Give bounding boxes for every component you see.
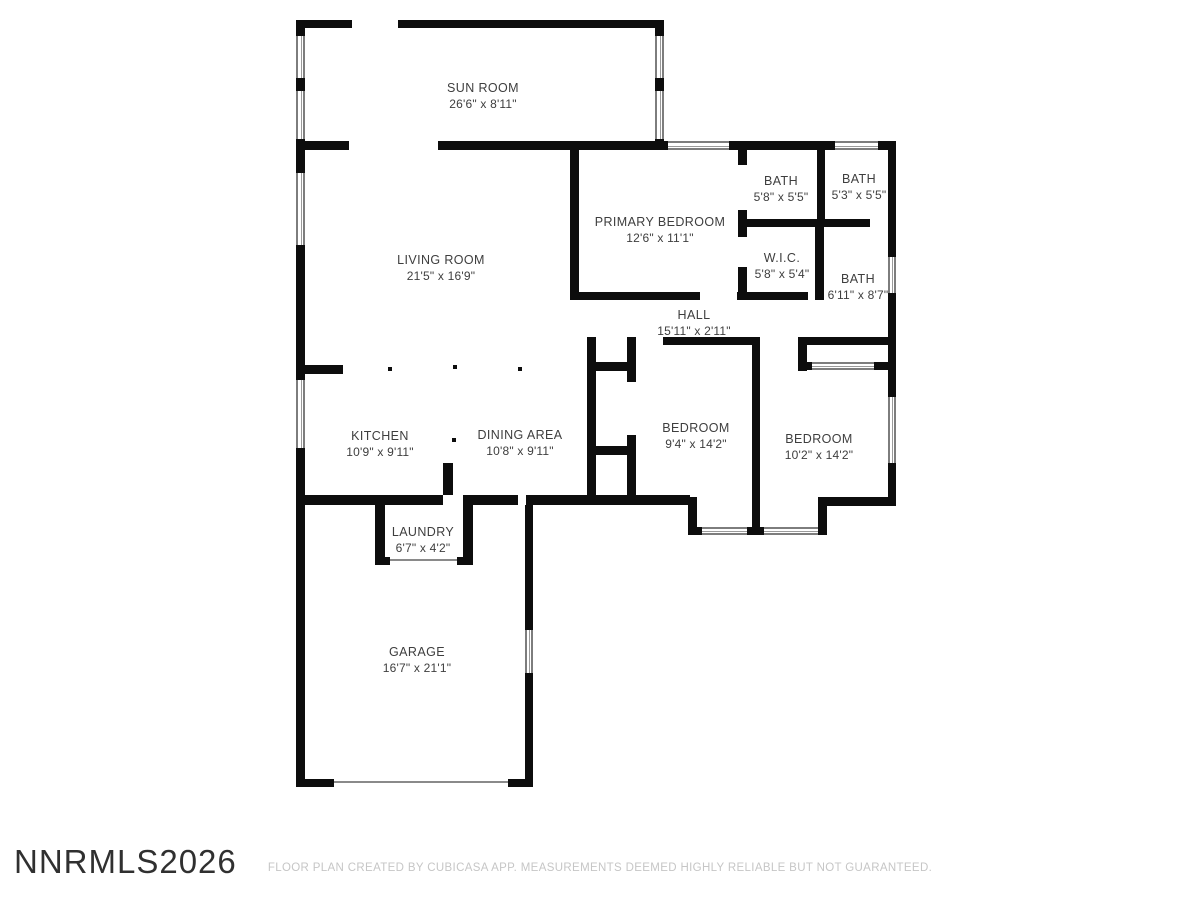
room-label-dining-area: DINING AREA10'8" x 9'11" bbox=[478, 428, 563, 459]
window bbox=[764, 527, 818, 535]
room-label-living-room: LIVING ROOM21'5" x 16'9" bbox=[397, 253, 485, 284]
window bbox=[888, 397, 896, 463]
wall bbox=[385, 495, 443, 505]
wall bbox=[747, 527, 754, 535]
wall bbox=[570, 292, 700, 300]
room-label-bedroom-1: BEDROOM9'4" x 14'2" bbox=[662, 421, 729, 452]
room-dims: 21'5" x 16'9" bbox=[397, 269, 485, 284]
room-dims: 10'2" x 14'2" bbox=[785, 448, 853, 463]
room-label-wic: W.I.C.5'8" x 5'4" bbox=[755, 251, 810, 282]
wall bbox=[878, 141, 896, 150]
wall bbox=[526, 495, 690, 505]
wall bbox=[443, 463, 453, 495]
wall bbox=[587, 337, 596, 497]
room-label-bath-1: BATH5'8" x 5'5" bbox=[754, 174, 809, 205]
wall bbox=[296, 245, 305, 380]
window bbox=[668, 141, 699, 150]
wall bbox=[738, 227, 747, 237]
wall bbox=[817, 150, 825, 227]
wall bbox=[738, 267, 747, 300]
room-dims: 5'3" x 5'5" bbox=[832, 188, 887, 203]
room-name: BEDROOM bbox=[785, 432, 853, 447]
tick-mark bbox=[312, 366, 316, 370]
wall bbox=[525, 505, 533, 630]
window bbox=[296, 91, 305, 139]
room-dims: 5'8" x 5'4" bbox=[755, 267, 810, 282]
window bbox=[296, 173, 305, 245]
wall bbox=[296, 779, 334, 787]
wall bbox=[398, 20, 664, 28]
wall bbox=[737, 292, 808, 300]
wall bbox=[305, 365, 343, 374]
window bbox=[296, 380, 305, 448]
room-label-hall: HALL15'11" x 2'11" bbox=[657, 308, 731, 339]
room-name: BEDROOM bbox=[662, 421, 729, 436]
window bbox=[702, 527, 747, 535]
room-name: W.I.C. bbox=[755, 251, 810, 266]
wall bbox=[375, 495, 385, 565]
wall bbox=[375, 557, 390, 565]
wall bbox=[798, 337, 890, 345]
room-name: BATH bbox=[832, 172, 887, 187]
room-name: HALL bbox=[657, 308, 731, 323]
room-dims: 6'7" x 4'2" bbox=[392, 541, 454, 556]
room-dims: 15'11" x 2'11" bbox=[657, 324, 731, 339]
room-name: LIVING ROOM bbox=[397, 253, 485, 268]
wall bbox=[570, 150, 579, 300]
room-name: BATH bbox=[754, 174, 809, 189]
window bbox=[655, 91, 664, 139]
wall bbox=[874, 362, 890, 370]
room-dims: 10'8" x 9'11" bbox=[478, 444, 563, 459]
wall bbox=[738, 219, 870, 227]
wall bbox=[473, 495, 518, 505]
room-name: PRIMARY BEDROOM bbox=[595, 215, 726, 230]
room-dims: 10'9" x 9'11" bbox=[346, 445, 414, 460]
room-name: DINING AREA bbox=[478, 428, 563, 443]
window bbox=[835, 141, 878, 150]
room-dims: 12'6" x 11'1" bbox=[595, 231, 726, 246]
room-label-bedroom-2: BEDROOM10'2" x 14'2" bbox=[785, 432, 853, 463]
wall bbox=[690, 527, 702, 535]
wall bbox=[655, 20, 664, 36]
wall bbox=[457, 557, 473, 565]
tick-mark bbox=[452, 438, 456, 442]
window bbox=[296, 36, 305, 78]
wall bbox=[798, 362, 812, 370]
room-label-laundry: LAUNDRY6'7" x 4'2" bbox=[392, 525, 454, 556]
wall bbox=[296, 495, 378, 505]
wall bbox=[627, 435, 636, 497]
tick-mark bbox=[575, 24, 579, 28]
floor-plan-canvas: SUN ROOM26'6" x 8'11" LIVING ROOM21'5" x… bbox=[0, 0, 1200, 900]
room-dims: 5'8" x 5'5" bbox=[754, 190, 809, 205]
wall bbox=[296, 141, 349, 150]
wall bbox=[729, 141, 835, 150]
wall bbox=[508, 779, 533, 787]
room-dims: 26'6" x 8'11" bbox=[447, 97, 519, 112]
wall bbox=[296, 78, 305, 91]
room-name: BATH bbox=[828, 272, 889, 287]
window bbox=[525, 630, 533, 673]
wall bbox=[815, 219, 824, 300]
room-dims: 16'7" x 21'1" bbox=[383, 661, 451, 676]
wall bbox=[888, 150, 896, 257]
room-name: SUN ROOM bbox=[447, 81, 519, 96]
room-label-sun-room: SUN ROOM26'6" x 8'11" bbox=[447, 81, 519, 112]
room-label-primary-bedroom: PRIMARY BEDROOM12'6" x 11'1" bbox=[595, 215, 726, 246]
window bbox=[812, 362, 874, 370]
wall bbox=[655, 78, 664, 91]
wall bbox=[296, 505, 305, 787]
room-label-kitchen: KITCHEN10'9" x 9'11" bbox=[346, 429, 414, 460]
footer-disclaimer: FLOOR PLAN CREATED BY CUBICASA APP. MEAS… bbox=[0, 862, 1200, 874]
window bbox=[888, 257, 896, 293]
room-name: LAUNDRY bbox=[392, 525, 454, 540]
door-line bbox=[390, 559, 457, 563]
window bbox=[699, 141, 729, 150]
wall bbox=[818, 497, 896, 506]
tick-mark bbox=[484, 142, 488, 146]
wall bbox=[438, 141, 668, 150]
window bbox=[655, 36, 664, 78]
room-label-bath-2: BATH5'3" x 5'5" bbox=[832, 172, 887, 203]
wall bbox=[296, 150, 305, 173]
door-line bbox=[334, 781, 508, 785]
wall bbox=[525, 673, 533, 787]
room-label-bath-3: BATH6'11" x 8'7" bbox=[828, 272, 889, 303]
wall bbox=[627, 337, 636, 382]
tick-mark bbox=[453, 365, 457, 369]
wall bbox=[888, 293, 896, 397]
room-label-garage: GARAGE16'7" x 21'1" bbox=[383, 645, 451, 676]
tick-mark bbox=[518, 367, 522, 371]
room-dims: 9'4" x 14'2" bbox=[662, 437, 729, 452]
room-dims: 6'11" x 8'7" bbox=[828, 288, 889, 303]
tick-mark bbox=[573, 143, 577, 147]
room-name: GARAGE bbox=[383, 645, 451, 660]
wall bbox=[463, 495, 473, 565]
tick-mark bbox=[388, 367, 392, 371]
wall bbox=[738, 150, 747, 165]
room-name: KITCHEN bbox=[346, 429, 414, 444]
wall bbox=[752, 337, 760, 535]
wall bbox=[296, 20, 305, 36]
